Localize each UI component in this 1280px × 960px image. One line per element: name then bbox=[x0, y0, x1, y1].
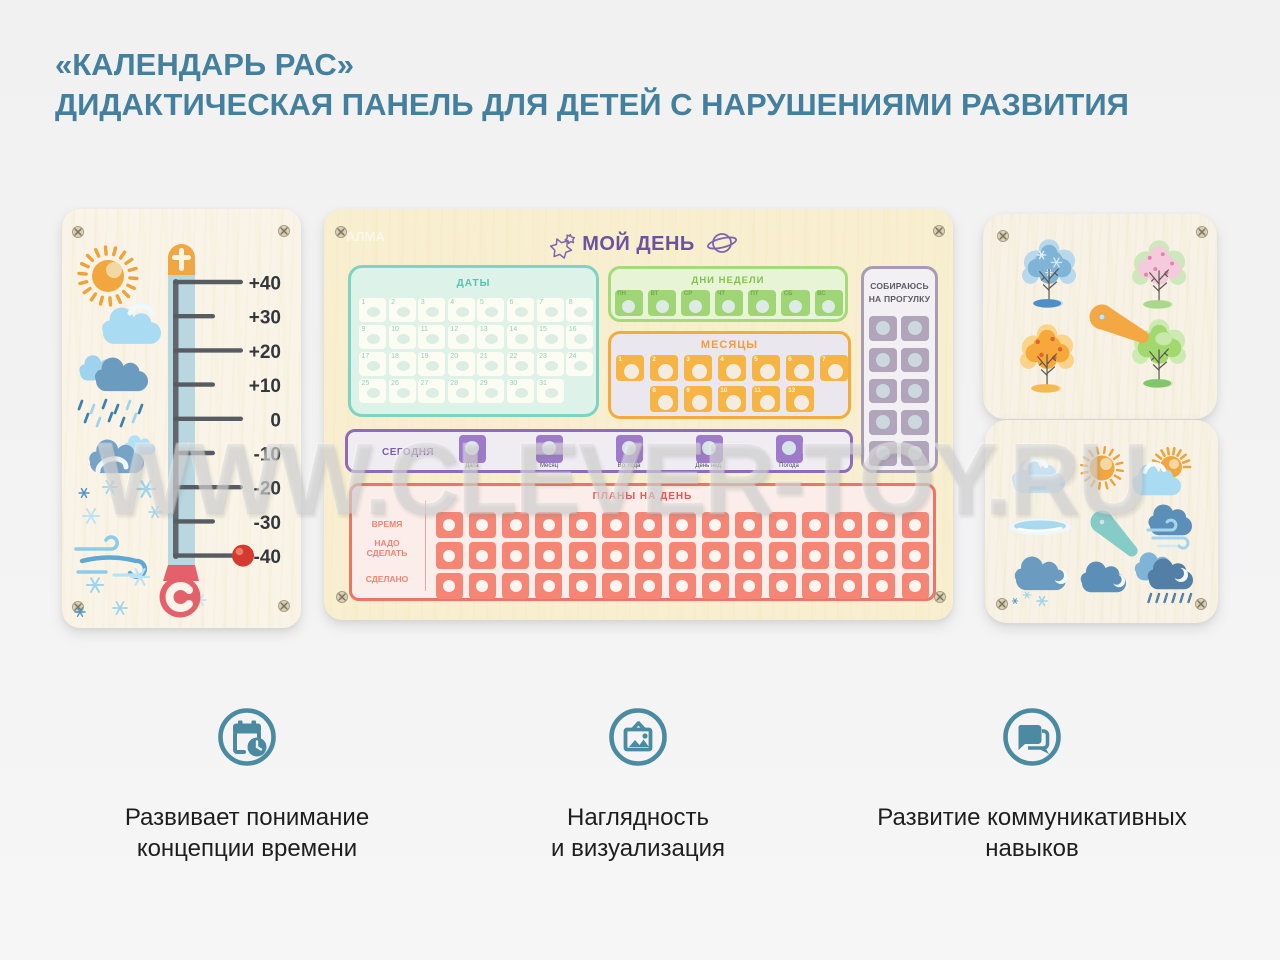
svg-text:+20: +20 bbox=[249, 342, 281, 363]
svg-text:+10: +10 bbox=[249, 376, 281, 397]
svg-text:-40: -40 bbox=[254, 547, 281, 568]
svg-text:+30: +30 bbox=[249, 308, 281, 329]
svg-text:+40: +40 bbox=[249, 274, 281, 295]
